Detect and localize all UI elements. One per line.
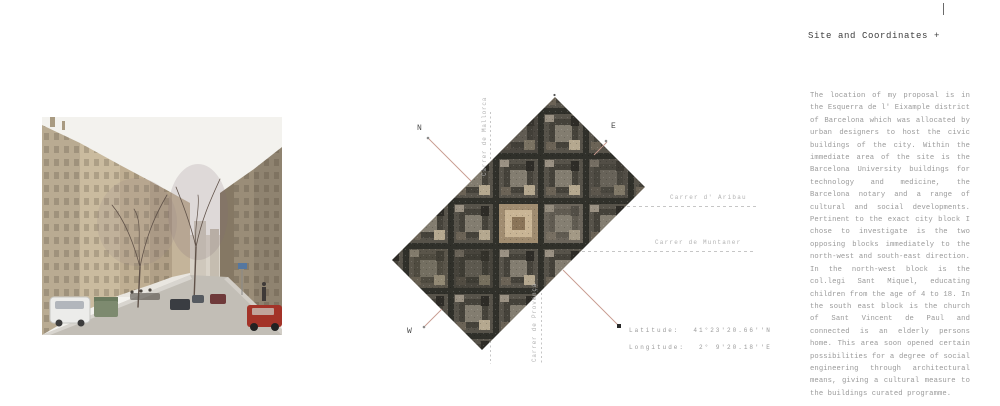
page-title: Site and Coordinates + [808,31,940,41]
west-leader-line [425,309,442,326]
coord-spacer [679,327,693,334]
street-line-muntaner [582,251,754,252]
compass-west-label: W [407,327,412,336]
street-line-mallorca-lower [490,341,491,364]
street-line-mallorca-upper [490,112,491,168]
coordinates-leader-line [563,270,619,326]
street-label-mallorca: Carrer de Mallorca [481,97,488,176]
coord-spacer [685,344,699,351]
street-label-muntaner: Carrer de Muntaner [655,239,741,246]
street-line-provenca [541,293,542,365]
map-apex-dot [553,94,555,96]
latitude-value: 41°23'20.66''N [693,327,771,334]
compass-east-label: E [611,122,616,131]
aerial-map-graphic [392,97,645,350]
corner-tick-mark [943,3,944,15]
compass-north-label: N [417,124,422,133]
east-dot [605,140,608,143]
coordinates-marker-square [617,324,621,328]
latitude-label: Latitude: [629,327,679,334]
north-leader-line [429,139,471,181]
street-label-aribau: Carrer d' Aribau [670,194,747,201]
street-line-aribau [627,206,757,207]
west-dot [423,326,426,329]
longitude-label: Longitude: [629,344,685,351]
street-label-provenca: Carrer de Provença [531,283,538,362]
street-photo [42,114,282,338]
longitude-row: Longitude: 2° 9'20.18''E [629,344,772,351]
aerial-site-map [392,97,645,350]
longitude-value: 2° 9'20.18''E [699,344,772,351]
street-photo-graphic [42,114,282,338]
latitude-row: Latitude: 41°23'20.66''N [629,327,772,334]
north-dot [427,137,430,140]
site-description-paragraph: The location of my proposal is in the Es… [810,90,970,400]
